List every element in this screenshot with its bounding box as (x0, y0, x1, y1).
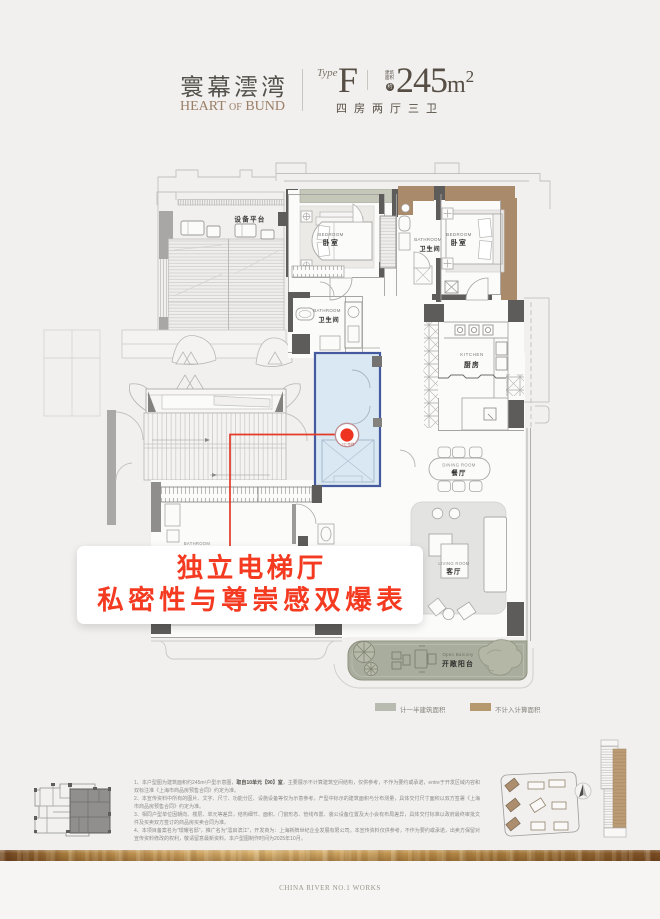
svg-text:LIVING ROOM: LIVING ROOM (438, 561, 469, 566)
svg-text:YD 电梯: YD 电梯 (342, 442, 355, 447)
svg-text:Open Balcony: Open Balcony (442, 652, 474, 657)
svg-text:BATHROOM: BATHROOM (313, 308, 340, 313)
svg-text:餐厅: 餐厅 (451, 468, 466, 477)
svg-text:厨房: 厨房 (464, 360, 480, 369)
svg-text:卧室: 卧室 (451, 238, 467, 247)
svg-text:卫生间: 卫生间 (319, 316, 340, 324)
svg-text:BEDROOM: BEDROOM (318, 232, 344, 237)
svg-text:KITCHEN: KITCHEN (460, 352, 483, 357)
svg-text:BEDROOM: BEDROOM (446, 232, 472, 237)
svg-text:设备平台: 设备平台 (234, 215, 265, 224)
svg-text:DINING ROOM: DINING ROOM (442, 463, 475, 468)
svg-text:BATHROOM: BATHROOM (414, 237, 441, 242)
svg-text:卫生间: 卫生间 (420, 245, 441, 253)
svg-text:卧室: 卧室 (323, 238, 339, 247)
svg-text:客厅: 客厅 (445, 567, 461, 576)
svg-text:开敞阳台: 开敞阳台 (442, 659, 474, 668)
